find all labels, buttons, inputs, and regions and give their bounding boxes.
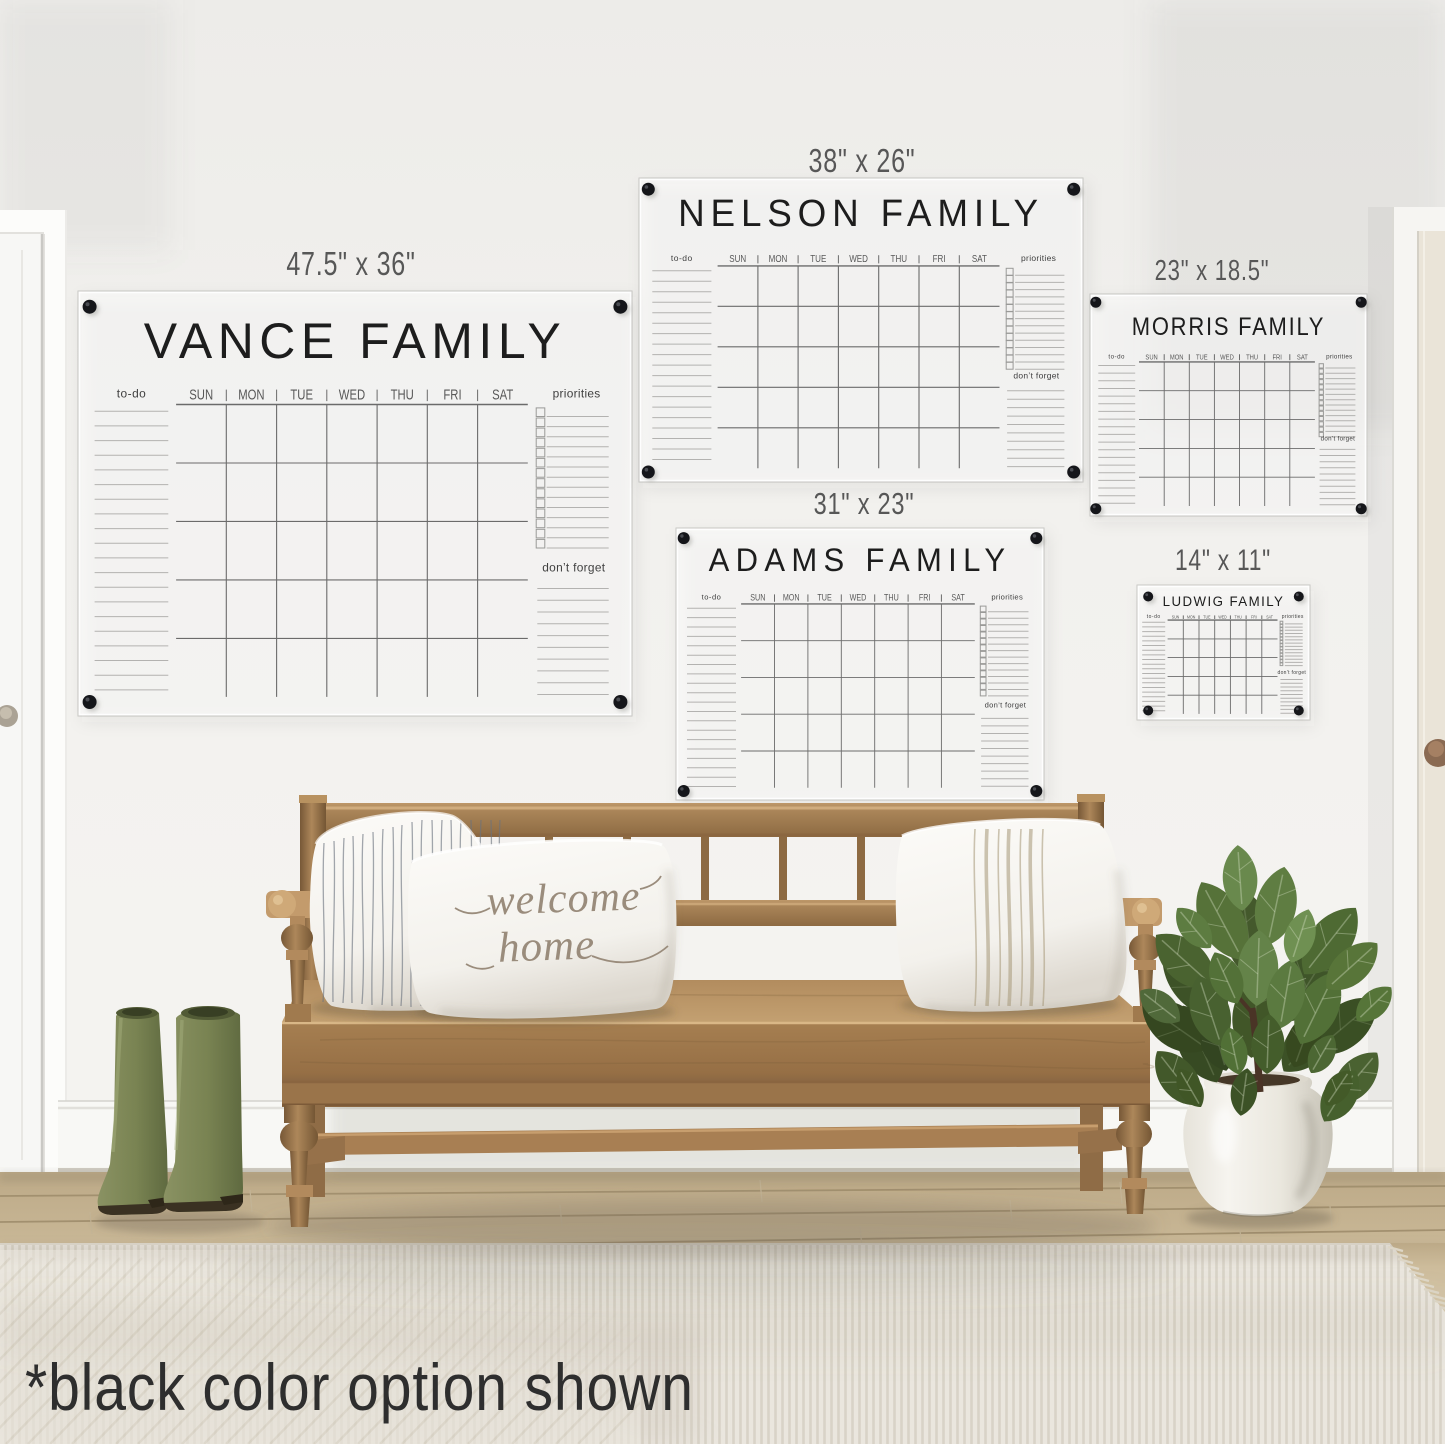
svg-text:priorities: priorities xyxy=(991,593,1023,602)
svg-text:SUN: SUN xyxy=(750,593,765,603)
svg-text:FRI: FRI xyxy=(1251,614,1257,620)
svg-text:SAT: SAT xyxy=(1266,614,1273,620)
svg-text:MON: MON xyxy=(769,253,788,264)
svg-text:LUDWIG FAMILY: LUDWIG FAMILY xyxy=(1163,594,1285,609)
svg-text:SUN: SUN xyxy=(189,386,213,403)
svg-text:SAT: SAT xyxy=(972,253,987,264)
svg-text:to-do: to-do xyxy=(671,253,693,263)
svg-text:MON: MON xyxy=(238,386,264,403)
svg-text:welcome: welcome xyxy=(486,873,641,924)
svg-text:SAT: SAT xyxy=(1297,354,1308,362)
svg-text:don’t forget: don’t forget xyxy=(1277,670,1306,676)
svg-text:MORRIS FAMILY: MORRIS FAMILY xyxy=(1132,313,1325,341)
svg-text:14" x 11": 14" x 11" xyxy=(1175,543,1271,577)
svg-text:47.5" x 36": 47.5" x 36" xyxy=(286,246,415,283)
svg-text:TUE: TUE xyxy=(817,593,832,603)
svg-text:priorities: priorities xyxy=(1326,353,1352,360)
svg-text:TUE: TUE xyxy=(810,253,826,264)
svg-text:to-do: to-do xyxy=(1108,353,1125,360)
svg-text:priorities: priorities xyxy=(1021,253,1056,263)
svg-text:WED: WED xyxy=(1220,354,1234,362)
svg-text:FRI: FRI xyxy=(933,253,946,264)
svg-text:23" x 18.5": 23" x 18.5" xyxy=(1155,255,1270,287)
svg-text:FRI: FRI xyxy=(919,593,931,603)
svg-text:to-do: to-do xyxy=(702,593,722,602)
svg-text:MON: MON xyxy=(1170,354,1184,362)
svg-text:FRI: FRI xyxy=(443,386,461,403)
svg-text:to-do: to-do xyxy=(117,387,147,401)
svg-text:THU: THU xyxy=(884,593,899,603)
svg-text:WED: WED xyxy=(850,593,867,603)
svg-text:FRI: FRI xyxy=(1272,354,1282,362)
svg-text:TUE: TUE xyxy=(1196,354,1208,362)
svg-text:THU: THU xyxy=(1246,354,1258,362)
svg-text:SAT: SAT xyxy=(492,386,513,403)
svg-text:SAT: SAT xyxy=(951,593,964,603)
svg-text:don’t forget: don’t forget xyxy=(542,561,605,575)
svg-text:SUN: SUN xyxy=(1172,614,1180,620)
svg-text:MON: MON xyxy=(1187,614,1195,620)
svg-text:priorities: priorities xyxy=(1282,614,1304,620)
svg-text:VANCE FAMILY: VANCE FAMILY xyxy=(144,313,567,369)
svg-text:priorities: priorities xyxy=(553,387,601,401)
svg-text:WED: WED xyxy=(1218,614,1226,620)
svg-text:38" x 26": 38" x 26" xyxy=(809,143,916,180)
svg-text:don’t forget: don’t forget xyxy=(1013,371,1059,381)
svg-text:WED: WED xyxy=(849,253,868,264)
svg-text:SUN: SUN xyxy=(1145,354,1157,362)
svg-text:NELSON FAMILY: NELSON FAMILY xyxy=(678,191,1044,234)
svg-text:TUE: TUE xyxy=(1203,614,1210,620)
svg-text:MON: MON xyxy=(783,593,800,603)
svg-text:TUE: TUE xyxy=(290,386,313,403)
svg-text:THU: THU xyxy=(391,386,414,403)
svg-text:WED: WED xyxy=(339,386,365,403)
svg-text:home: home xyxy=(497,921,596,971)
svg-text:to-do: to-do xyxy=(1147,614,1161,620)
svg-text:THU: THU xyxy=(891,253,907,264)
svg-text:31" x 23": 31" x 23" xyxy=(814,486,915,521)
svg-text:don’t forget: don’t forget xyxy=(1321,436,1356,443)
svg-text:SUN: SUN xyxy=(729,253,746,264)
svg-text:don’t forget: don’t forget xyxy=(985,701,1027,710)
svg-text:THU: THU xyxy=(1235,614,1242,620)
svg-text:ADAMS FAMILY: ADAMS FAMILY xyxy=(709,542,1012,579)
svg-text:*black color option shown: *black color option shown xyxy=(25,1351,694,1425)
